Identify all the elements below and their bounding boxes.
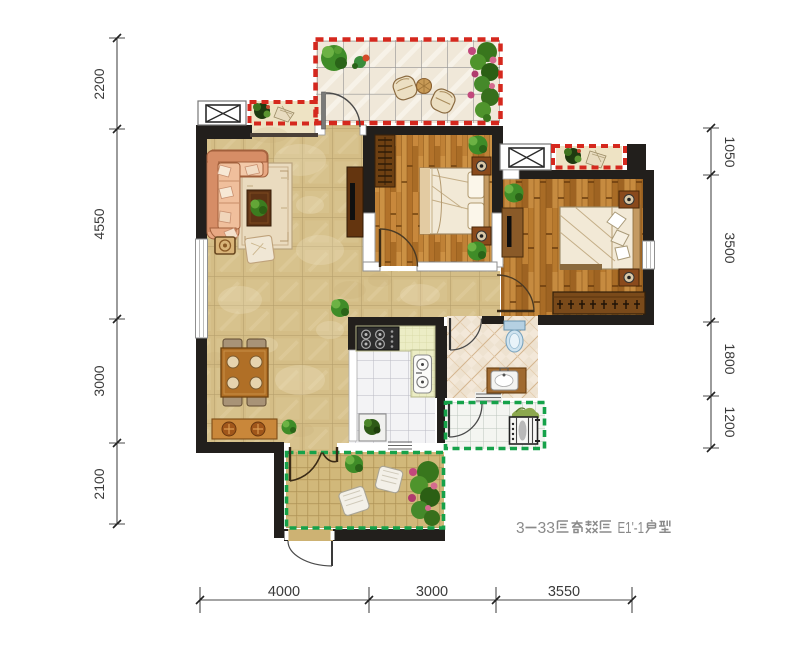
svg-text:4550: 4550 — [91, 208, 107, 239]
svg-text:3: 3 — [516, 520, 525, 537]
svg-text:2100: 2100 — [91, 468, 107, 499]
svg-text:1800: 1800 — [722, 343, 738, 374]
svg-text:3000: 3000 — [91, 365, 107, 396]
svg-text:3550: 3550 — [548, 584, 580, 600]
svg-text:1050: 1050 — [722, 136, 738, 167]
svg-text:1200: 1200 — [722, 406, 738, 437]
svg-text:2200: 2200 — [91, 68, 107, 99]
svg-text:3000: 3000 — [416, 584, 448, 600]
svg-text:E1'-1: E1'-1 — [618, 520, 645, 537]
svg-text:4000: 4000 — [268, 584, 300, 600]
svg-text:33: 33 — [538, 520, 556, 537]
svg-text:3500: 3500 — [722, 232, 738, 263]
